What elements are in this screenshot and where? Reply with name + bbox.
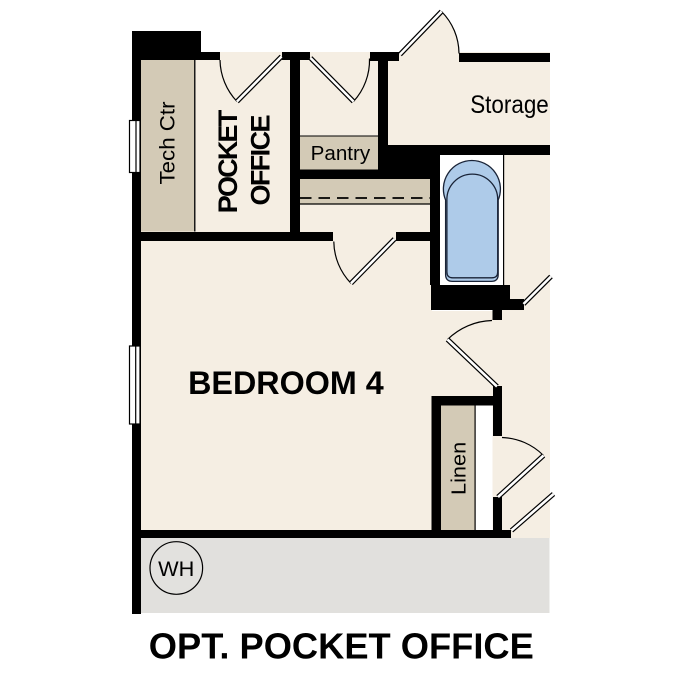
svg-text:Linen: Linen [449, 442, 471, 495]
svg-text:POCKET: POCKET [213, 109, 243, 213]
svg-text:Pantry: Pantry [311, 143, 371, 165]
svg-text:WH: WH [158, 557, 194, 581]
svg-text:BEDROOM 4: BEDROOM 4 [188, 365, 384, 401]
svg-text:OPT. POCKET OFFICE: OPT. POCKET OFFICE [149, 626, 534, 667]
svg-text:Storage: Storage [470, 91, 549, 119]
svg-text:Tech Ctr: Tech Ctr [157, 101, 180, 184]
svg-text:OFFICE: OFFICE [246, 115, 276, 206]
